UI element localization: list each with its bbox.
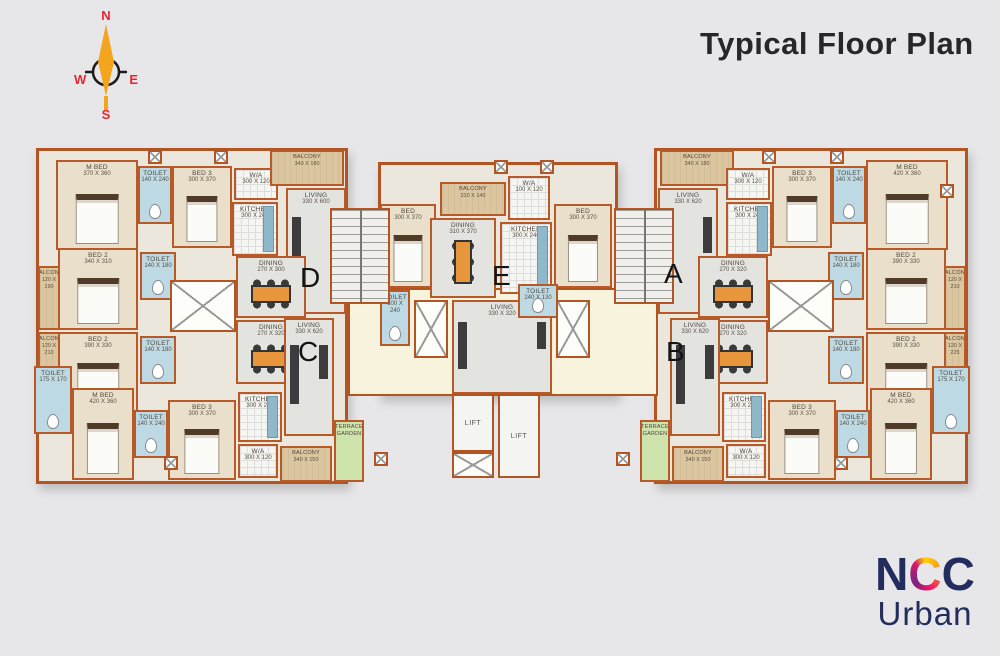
room-name: BED 2: [88, 336, 108, 343]
room-b-toilet_m: TOILET140 X 240: [836, 410, 870, 458]
room-d-mbed: M BED370 X 360: [56, 160, 138, 250]
room-c-kitchen: KITCHEN300 X 240: [238, 392, 282, 442]
unit-label-a: A: [664, 258, 683, 290]
lift-label: LIFT: [465, 420, 481, 427]
room-dims: 300 X 240: [512, 233, 539, 240]
room-dims: 300 X 370: [188, 177, 215, 184]
room-name: BED 2: [88, 252, 108, 259]
floor-plan: M BED370 X 360TOILET140 X 240BED 3300 X …: [0, 0, 1000, 656]
room-name: BALCONY: [292, 450, 320, 457]
room-name: W/A: [252, 448, 265, 455]
room-name: BALCONY: [38, 270, 60, 277]
room-c-toilet_m: TOILET140 X 240: [134, 410, 168, 458]
room-c-toilet2: TOILET140 X 180: [140, 336, 176, 384]
room-d-toilet_m: TOILET140 X 240: [138, 166, 172, 224]
lift-pit: [452, 452, 494, 478]
column-marker: [540, 160, 554, 174]
room-b-mbed: M BED420 X 360: [870, 388, 932, 480]
room-d-dining: DINING270 X 300: [236, 256, 306, 318]
room-b-toilet2: TOILET140 X 180: [828, 336, 864, 384]
room-name: TOILET: [834, 340, 858, 347]
unit-label-d: D: [300, 262, 320, 294]
room-c-balcony_bottom: BALCONY340 X 150: [280, 446, 332, 482]
room-name: BALCONY: [684, 450, 712, 457]
room-name: KITCHEN: [511, 226, 541, 233]
room-dims: 140 X 180: [832, 263, 859, 270]
room-dims: 340 X 180: [294, 161, 319, 168]
room-name: BED: [401, 208, 415, 215]
unit-label-b: B: [666, 336, 685, 368]
room-dims: 330 X 620: [681, 329, 708, 336]
room-name: M BED: [86, 164, 108, 171]
logo-letter-c-gradient: C: [908, 548, 941, 600]
room-a-mbed: M BED420 X 360: [866, 160, 948, 250]
room-dims: 340 X 150: [685, 457, 710, 464]
room-name: BALCONY: [944, 270, 966, 277]
room-name: DINING: [721, 324, 745, 331]
room-name: BED 3: [792, 404, 812, 411]
room-dims: 300 X 240: [246, 403, 273, 410]
column-marker: [214, 150, 228, 164]
room-dims: 300 X 370: [788, 177, 815, 184]
room-c-terrace: TERRACE GARDEN: [334, 420, 364, 482]
room-a-toilet_m: TOILET140 X 240: [832, 166, 866, 224]
room-dims: 300 X 370: [188, 411, 215, 418]
room-b-kitchen: KITCHEN300 X 240: [722, 392, 766, 442]
room-dims: 140 X 240: [141, 177, 168, 184]
room-d-balcony_side: BALCONY120 X 190: [38, 266, 60, 330]
column-marker: [374, 452, 388, 466]
room-name: KITCHEN: [729, 396, 759, 403]
shaft-left: [170, 280, 236, 332]
room-name: BED 3: [792, 170, 812, 177]
room-name: TOILET: [143, 170, 167, 177]
unit-label-e: E: [492, 260, 511, 292]
room-dims: 330 X 620: [674, 199, 701, 206]
room-dims: 270 X 320: [719, 267, 746, 274]
room-dims: 420 X 360: [887, 399, 914, 406]
room-dims: 310 X 370: [449, 229, 476, 236]
room-e-bed_right: BED300 X 370: [554, 204, 612, 288]
room-name: DINING: [259, 260, 283, 267]
room-dims: 300 X 240: [730, 403, 757, 410]
room-d-bed3: BED 3300 X 370: [172, 166, 232, 248]
room-c-bed3: BED 3300 X 370: [168, 400, 236, 480]
shaft-right: [768, 280, 834, 332]
room-dims: 120 X 210: [946, 277, 964, 291]
room-name: KITCHEN: [245, 396, 275, 403]
room-name: TOILET: [526, 288, 550, 295]
room-name: DINING: [259, 324, 283, 331]
logo-urban-text: Urban: [860, 597, 990, 631]
room-d-kitchen: KITCHEN300 X 240: [232, 202, 278, 256]
logo-ncc-text: NCC: [860, 552, 990, 596]
room-name: TOILET: [834, 256, 858, 263]
room-name: LIVING: [677, 192, 700, 199]
room-a-bed2: BED 2390 X 330: [866, 248, 946, 330]
room-b-balcony_bottom: BALCONY340 X 150: [672, 446, 724, 482]
room-dims: 140 X 180: [144, 263, 171, 270]
room-dims: 420 X 360: [89, 399, 116, 406]
room-dims: 370 X 360: [83, 171, 110, 178]
lift-2: LIFT: [498, 394, 540, 478]
room-dims: 300 X 370: [569, 215, 596, 222]
room-dims: 340 X 180: [684, 161, 709, 168]
room-dims: 175 X 170: [937, 377, 964, 384]
room-dims: 300 X 240: [241, 213, 268, 220]
unit-label-c: C: [298, 336, 318, 368]
room-dims: 390 X 330: [892, 343, 919, 350]
column-marker: [940, 184, 954, 198]
ncc-urban-logo: NCC Urban: [860, 552, 990, 631]
room-name: M BED: [92, 392, 114, 399]
room-name: M BED: [896, 164, 918, 171]
room-name: W/A: [250, 172, 263, 179]
room-dims: 300 X 120: [244, 455, 271, 462]
room-name: BED 3: [192, 404, 212, 411]
room-name: BED 3: [192, 170, 212, 177]
room-name: LIVING: [298, 322, 321, 329]
room-name: TOILET: [41, 370, 65, 377]
room-a-bed3: BED 3300 X 370: [772, 166, 832, 248]
room-name: BALCONY: [683, 154, 711, 161]
room-name: TOILET: [139, 414, 163, 421]
column-marker: [830, 150, 844, 164]
room-dims: 340 X 310: [84, 259, 111, 266]
room-dims: 300 X 120: [734, 179, 761, 186]
room-a-dining: DINING270 X 320: [698, 256, 768, 318]
column-marker: [148, 150, 162, 164]
room-name: TERRACE GARDEN: [335, 424, 363, 438]
room-dims: 100 X 120: [515, 187, 542, 194]
room-e-balcony: BALCONY310 X 140: [440, 182, 506, 216]
room-c-mbed: M BED420 X 360: [72, 388, 134, 480]
room-dims: 340 X 150: [293, 457, 318, 464]
staircase-left: [330, 208, 390, 304]
room-name: M BED: [890, 392, 912, 399]
column-marker: [164, 456, 178, 470]
shaft-center-left: [414, 300, 448, 358]
room-name: DINING: [451, 222, 475, 229]
room-dims: 330 X 320: [488, 311, 515, 318]
room-name: W/A: [742, 172, 755, 179]
room-name: TOILET: [841, 414, 865, 421]
room-name: LIVING: [684, 322, 707, 329]
room-name: BED 2: [896, 336, 916, 343]
column-marker: [834, 456, 848, 470]
room-name: LIVING: [305, 192, 328, 199]
room-dims: 140 X 180: [144, 347, 171, 354]
room-name: BALCONY: [293, 154, 321, 161]
room-dims: 175 X 170: [39, 377, 66, 384]
room-dims: 300 X 370: [788, 411, 815, 418]
room-dims: 330 X 620: [295, 329, 322, 336]
room-dims: 270 X 320: [719, 331, 746, 338]
lift-1: LIFT: [452, 394, 494, 452]
room-name: TOILET: [146, 340, 170, 347]
room-dims: 390 X 330: [84, 343, 111, 350]
room-name: DINING: [721, 260, 745, 267]
room-dims: 420 X 360: [893, 171, 920, 178]
room-dims: 330 X 600: [302, 199, 329, 206]
room-name: TOILET: [837, 170, 861, 177]
room-b-toilet_corner: TOILET175 X 170: [932, 366, 970, 434]
lift-label: LIFT: [511, 433, 527, 440]
room-b-bed3: BED 3300 X 370: [768, 400, 836, 480]
room-name: KITCHEN: [240, 206, 270, 213]
logo-letter-n: N: [875, 548, 908, 600]
room-name: W/A: [523, 180, 536, 187]
room-b-wa: W/A300 X 120: [726, 444, 766, 478]
room-dims: 300 X 240: [735, 213, 762, 220]
room-dims: 300 X 120: [732, 455, 759, 462]
room-name: LIVING: [491, 304, 514, 311]
shaft-center-right: [556, 300, 590, 358]
room-name: KITCHEN: [734, 206, 764, 213]
room-name: BALCONY: [38, 336, 60, 343]
room-dims: 120 X 190: [40, 277, 58, 291]
column-marker: [494, 160, 508, 174]
room-a-balcony_top: BALCONY340 X 180: [660, 150, 734, 186]
room-dims: 270 X 320: [257, 331, 284, 338]
room-name: BALCONY: [944, 336, 966, 343]
room-name: BALCONY: [459, 186, 487, 193]
room-dims: 120 X 225: [946, 343, 964, 357]
room-dims: 140 X 240: [137, 421, 164, 428]
room-a-balcony_side: BALCONY120 X 210: [944, 266, 966, 330]
room-name: BED: [576, 208, 590, 215]
room-name: W/A: [740, 448, 753, 455]
room-e-dining: DINING310 X 370: [430, 218, 496, 298]
room-name: TOILET: [939, 370, 963, 377]
room-name: TERRACE GARDEN: [641, 424, 669, 438]
logo-letter-c: C: [942, 548, 975, 600]
room-e-wa: W/A100 X 120: [508, 176, 550, 220]
room-a-wa: W/A300 X 120: [726, 168, 770, 200]
room-dims: 310 X 140: [460, 193, 485, 200]
room-name: BED 2: [896, 252, 916, 259]
room-c-wa: W/A300 X 120: [238, 444, 278, 478]
room-a-kitchen: KITCHEN300 X 240: [726, 202, 772, 256]
room-dims: 140 X 180: [832, 347, 859, 354]
room-dims: 300 X 120: [242, 179, 269, 186]
room-c-toilet_corner: TOILET175 X 170: [34, 366, 72, 434]
room-dims: 140 X 240: [839, 421, 866, 428]
column-marker: [616, 452, 630, 466]
room-dims: 240 X 130: [524, 295, 551, 302]
room-dims: 140 X 240: [835, 177, 862, 184]
room-dims: 270 X 300: [257, 267, 284, 274]
room-d-balcony_top: BALCONY340 X 180: [270, 150, 344, 186]
room-b-terrace: TERRACE GARDEN: [640, 420, 670, 482]
room-dims: 120 X 210: [40, 343, 58, 357]
room-dims: 300 X 370: [394, 215, 421, 222]
room-name: TOILET: [146, 256, 170, 263]
column-marker: [762, 150, 776, 164]
room-e-toilet_right: TOILET240 X 130: [518, 284, 558, 318]
room-dims: 390 X 330: [892, 259, 919, 266]
room-d-bed2: BED 2340 X 310: [58, 248, 138, 330]
